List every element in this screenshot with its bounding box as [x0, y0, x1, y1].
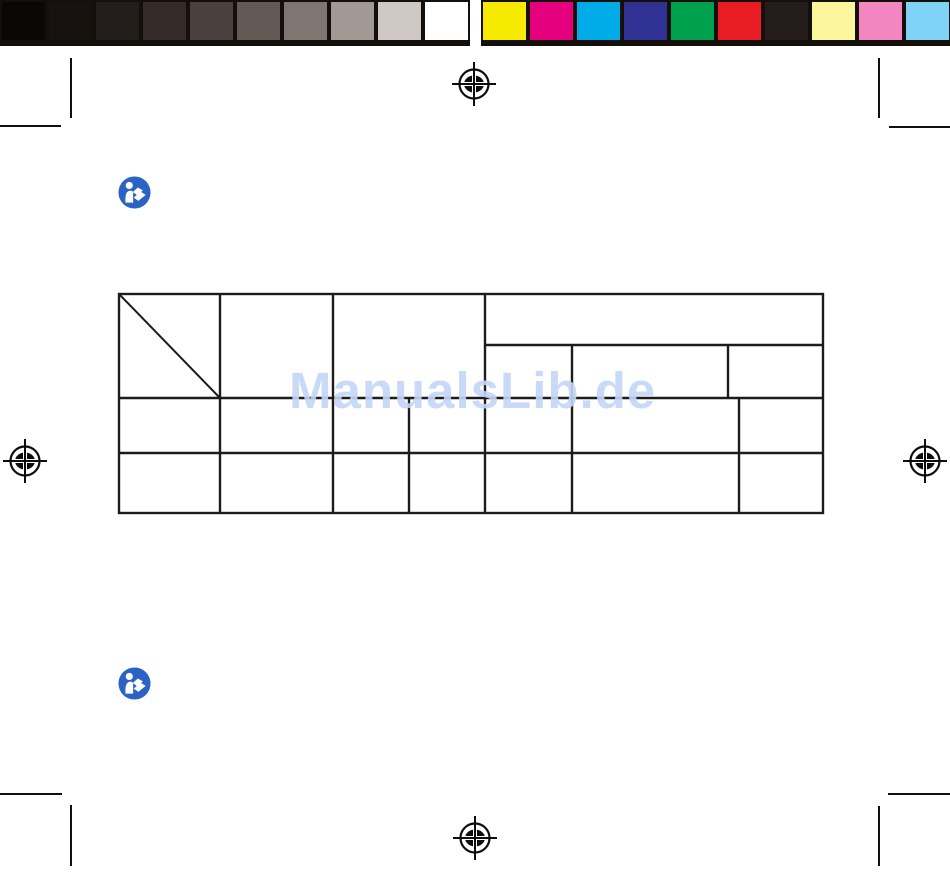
calibration-swatch — [143, 2, 186, 40]
crop-mark-top-left-vertical — [70, 58, 72, 118]
calibration-swatch — [284, 2, 327, 40]
calibration-swatch — [812, 2, 855, 40]
registration-mark-top-center — [452, 62, 496, 106]
crop-mark-bottom-left-horizontal — [0, 793, 62, 795]
calibration-swatch — [577, 2, 620, 40]
calibration-swatch — [859, 2, 902, 40]
color-calibration-bar — [481, 0, 950, 46]
crop-mark-top-right-horizontal — [889, 126, 950, 128]
calibration-swatch — [765, 2, 808, 40]
registration-mark-left-middle — [3, 439, 47, 483]
calibration-swatch — [49, 2, 92, 40]
scanned-manual-page: ManualsLib.de — [0, 0, 950, 896]
crop-mark-top-right-vertical — [878, 58, 880, 118]
registration-mark-bottom-center — [453, 816, 497, 860]
calibration-swatch — [425, 2, 468, 40]
crop-mark-top-left-horizontal — [0, 125, 61, 127]
calibration-swatch — [237, 2, 280, 40]
crop-mark-bottom-right-horizontal — [888, 793, 950, 795]
crop-mark-bottom-left-vertical — [70, 805, 72, 866]
calibration-swatch — [624, 2, 667, 40]
calibration-swatch — [190, 2, 233, 40]
calibration-swatch — [378, 2, 421, 40]
calibration-swatch — [671, 2, 714, 40]
calibration-swatch — [331, 2, 374, 40]
calibration-swatch — [483, 2, 526, 40]
read-manual-icon — [118, 176, 151, 209]
calibration-swatch — [530, 2, 573, 40]
grayscale-calibration-bar — [0, 0, 470, 46]
calibration-swatch — [718, 2, 761, 40]
table-header-diagonal — [119, 294, 220, 398]
crop-mark-bottom-right-vertical — [878, 806, 880, 866]
read-manual-icon — [118, 667, 151, 700]
manualslib-watermark: ManualsLib.de — [289, 365, 656, 416]
registration-mark-right-middle — [903, 439, 947, 483]
calibration-swatch — [906, 2, 949, 40]
calibration-swatch — [96, 2, 139, 40]
calibration-swatch — [2, 2, 45, 40]
